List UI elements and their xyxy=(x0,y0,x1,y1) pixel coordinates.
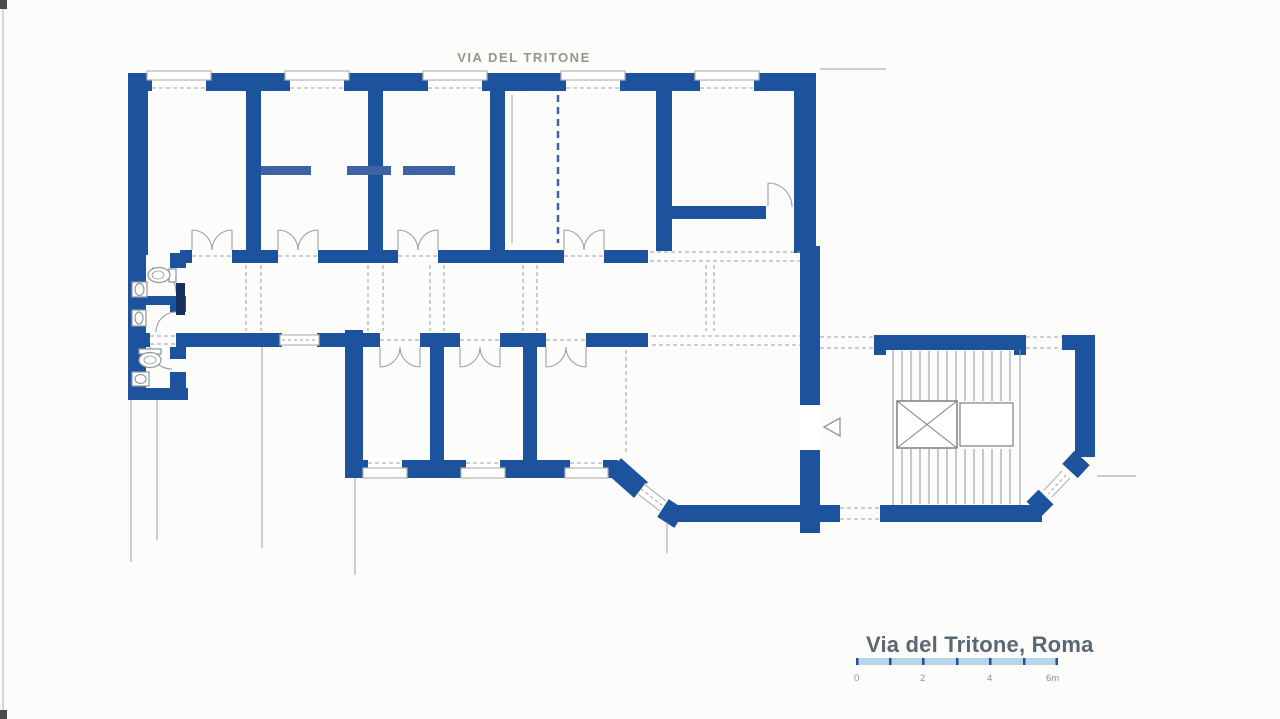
double-door xyxy=(380,347,586,367)
scan-edge-artifacts xyxy=(0,0,7,719)
single-door xyxy=(768,183,792,207)
glazed-opening xyxy=(280,333,319,347)
shaft-box xyxy=(960,403,1013,446)
walls xyxy=(128,73,1095,533)
entrance-arrow-icon xyxy=(824,418,840,436)
toilet-icon xyxy=(148,268,176,283)
scale-bar: 0 2 4 6m xyxy=(854,658,1059,684)
duct xyxy=(176,283,185,315)
dashed-openings xyxy=(150,252,1062,519)
sink-icon xyxy=(132,310,146,326)
floor-plan-page: VIA DEL TRITONE xyxy=(0,0,1280,719)
sink-icon xyxy=(132,282,147,297)
toilet-icon xyxy=(139,349,161,368)
wall-stubs xyxy=(261,166,455,175)
entrance-opening xyxy=(800,405,820,450)
scale-tick-4: 4 xyxy=(987,673,992,684)
scale-tick-6m: 6m xyxy=(1046,673,1059,684)
scale-tick-2: 2 xyxy=(920,673,925,684)
plan-title: Via del Tritone, Roma xyxy=(866,632,1094,657)
room-partition-traces xyxy=(512,95,558,243)
street-label: VIA DEL TRITONE xyxy=(457,50,591,65)
scale-tick-0: 0 xyxy=(854,673,859,684)
elevator-shaft xyxy=(897,401,1013,448)
sink-icon xyxy=(132,372,149,386)
site-lines xyxy=(131,69,1136,575)
floor-plan-drawing: VIA DEL TRITONE xyxy=(0,0,1280,719)
